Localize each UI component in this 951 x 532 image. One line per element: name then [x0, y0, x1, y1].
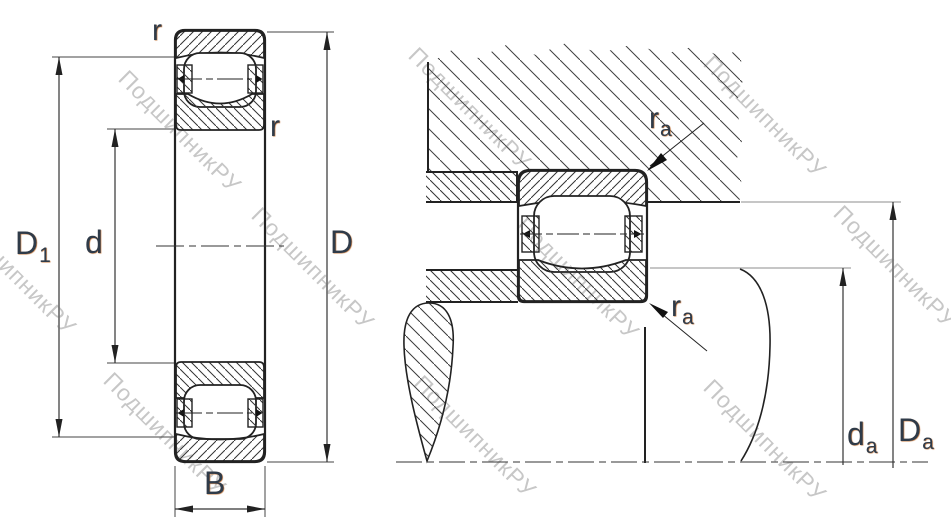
label-D1: D1 [15, 227, 51, 259]
label-ra-top-base: r [649, 102, 659, 135]
label-da-sub: a [866, 435, 878, 458]
label-D1-sub: 1 [39, 244, 51, 267]
label-d: d [85, 226, 103, 258]
label-ra-top: ra [649, 104, 672, 134]
label-Da-sub: a [922, 431, 934, 454]
left-view-cross-section [156, 30, 284, 462]
label-D: D [330, 226, 353, 258]
label-D1-base: D [15, 225, 38, 261]
label-B: B [204, 467, 225, 499]
cover-strip-section [426, 173, 517, 202]
bearing-technical-drawing: ПодшипникРУ ПодшипникРУ ПодшипникРУ Подш… [0, 0, 951, 532]
label-da-base: d [847, 416, 865, 452]
label-ra-bottom-sub: a [682, 306, 694, 329]
label-ra-bottom: ra [671, 292, 694, 322]
label-Da-base: D [898, 412, 921, 448]
shaft-shoulder-section [426, 270, 518, 302]
label-Da: Da [898, 414, 934, 446]
label-r-top: r [152, 16, 162, 46]
ra-bottom-arrow [649, 303, 668, 318]
barrel-roller-bottom [184, 385, 256, 439]
label-ra-top-sub: a [660, 118, 672, 141]
label-da: da [847, 418, 877, 450]
label-r-side: r [270, 112, 280, 142]
label-ra-bottom-base: r [671, 290, 681, 323]
